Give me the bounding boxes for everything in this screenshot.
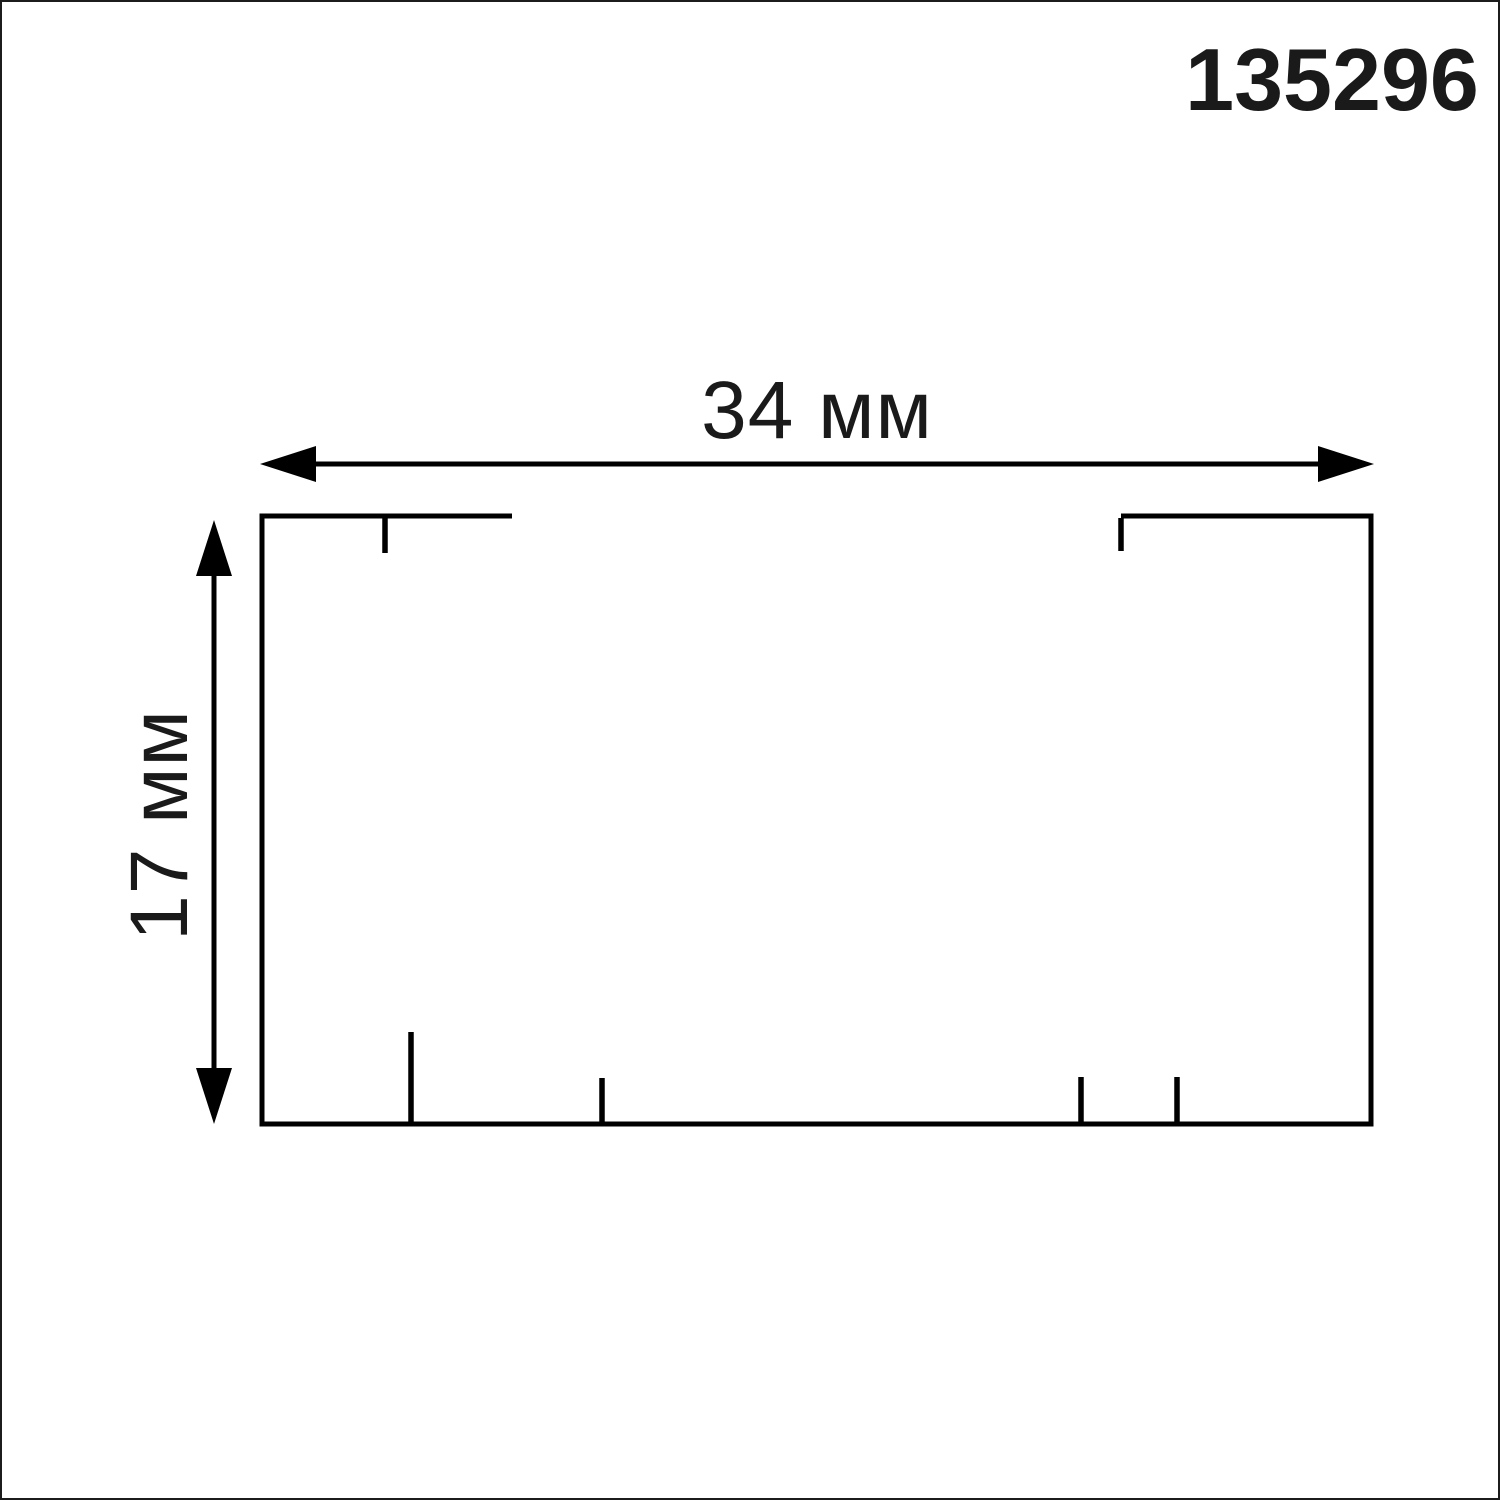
width-arrow-head-right (1318, 446, 1374, 482)
height-arrow-head-bottom (196, 1068, 232, 1124)
diagram-canvas: 34 мм 17 мм 135296 (0, 0, 1500, 1500)
dimension-drawing: 34 мм 17 мм 135296 (2, 2, 1500, 1500)
outline-main-path (262, 516, 1371, 1124)
width-dimension-label: 34 мм (701, 365, 933, 456)
height-arrow-head-top (196, 520, 232, 576)
height-dimension: 17 мм (114, 520, 232, 1124)
width-dimension: 34 мм (260, 365, 1374, 482)
part-number: 135296 (1185, 30, 1479, 129)
part-outline (262, 516, 1371, 1124)
width-arrow-head-left (260, 446, 316, 482)
height-dimension-label: 17 мм (114, 709, 205, 941)
